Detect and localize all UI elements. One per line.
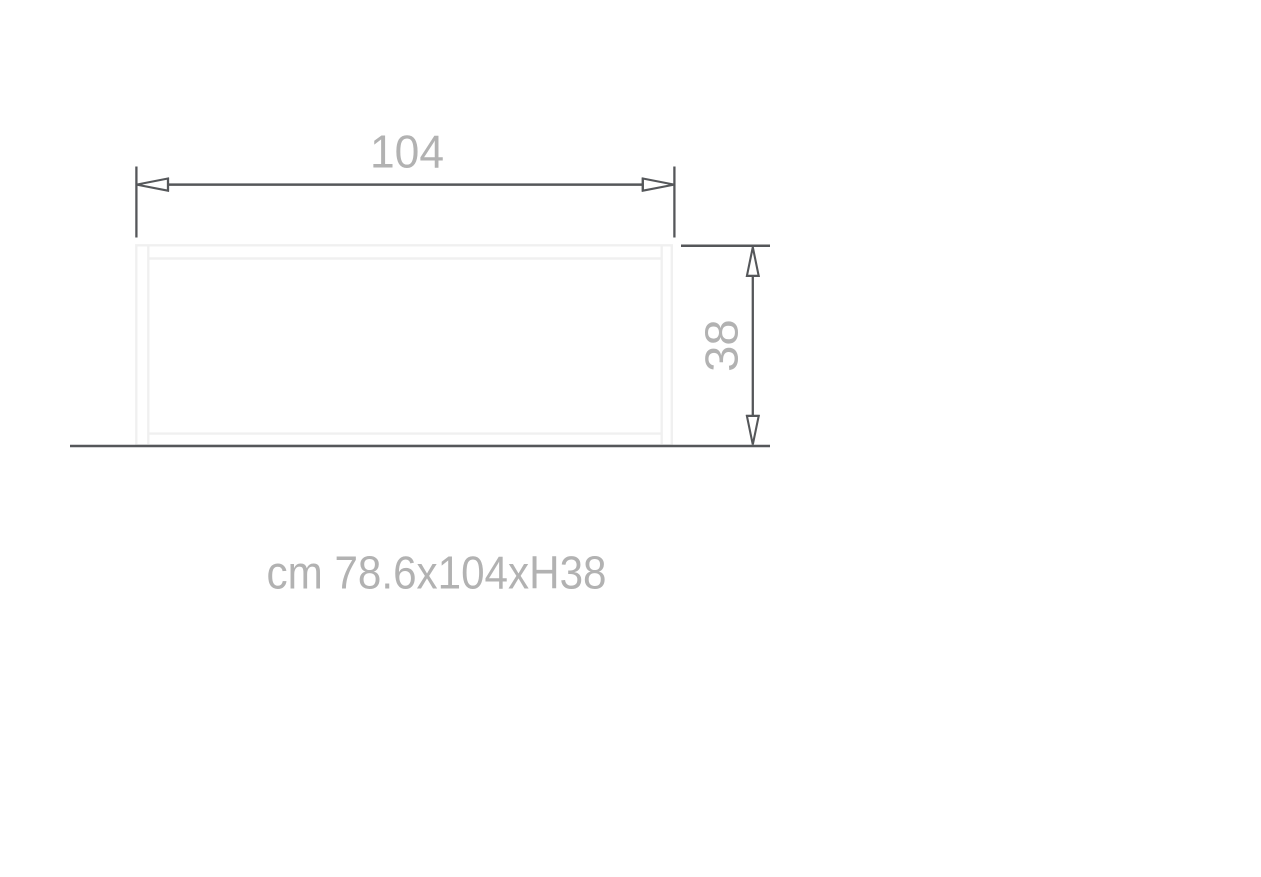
svg-text:38: 38 [696,319,748,372]
svg-text:104: 104 [370,126,444,178]
svg-text:cm 78.6x104xH38: cm 78.6x104xH38 [267,547,607,599]
